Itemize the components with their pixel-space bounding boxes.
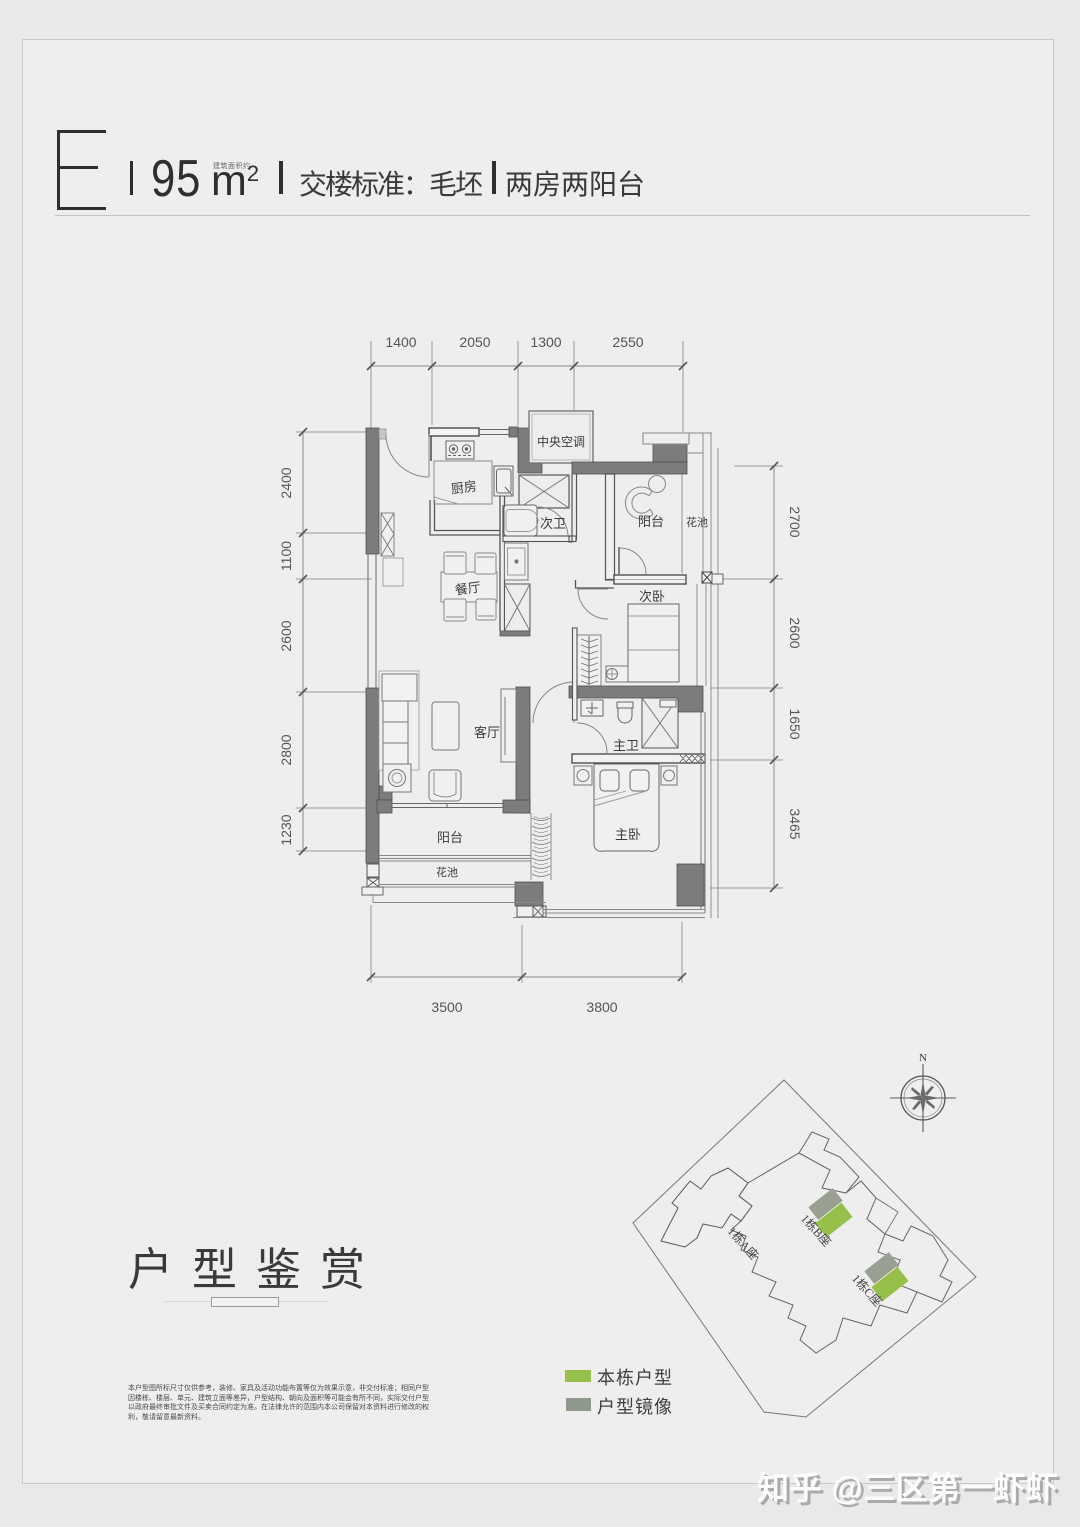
svg-text:1400: 1400: [385, 334, 416, 350]
svg-text:1300: 1300: [530, 334, 561, 350]
svg-text:2700: 2700: [787, 506, 803, 537]
svg-text:厨房: 厨房: [450, 478, 478, 496]
svg-text:主卧: 主卧: [615, 827, 641, 842]
svg-text:中央空调: 中央空调: [537, 434, 585, 449]
svg-text:N: N: [919, 1052, 927, 1064]
svg-text:2800: 2800: [278, 734, 294, 765]
svg-text:3500: 3500: [431, 999, 462, 1015]
svg-text:花池: 花池: [686, 516, 708, 529]
svg-text:3800: 3800: [586, 999, 617, 1015]
svg-text:2600: 2600: [278, 620, 294, 651]
svg-text:1230: 1230: [278, 814, 294, 845]
svg-text:次卫: 次卫: [540, 516, 566, 531]
svg-text:次卧: 次卧: [639, 589, 665, 604]
svg-text:3465: 3465: [787, 808, 803, 839]
svg-text:主卫: 主卫: [613, 738, 639, 753]
svg-text:2400: 2400: [278, 467, 294, 498]
svg-text:阳台: 阳台: [437, 830, 463, 845]
svg-text:花池: 花池: [436, 866, 458, 879]
svg-text:2600: 2600: [787, 617, 803, 648]
svg-text:1100: 1100: [278, 541, 294, 571]
svg-text:1650: 1650: [787, 708, 803, 739]
svg-text:2550: 2550: [612, 334, 643, 350]
svg-text:1栋A座: 1栋A座: [725, 1224, 762, 1263]
svg-text:2050: 2050: [459, 334, 490, 350]
svg-text:客厅: 客厅: [474, 725, 500, 740]
svg-text:阳台: 阳台: [638, 514, 664, 529]
